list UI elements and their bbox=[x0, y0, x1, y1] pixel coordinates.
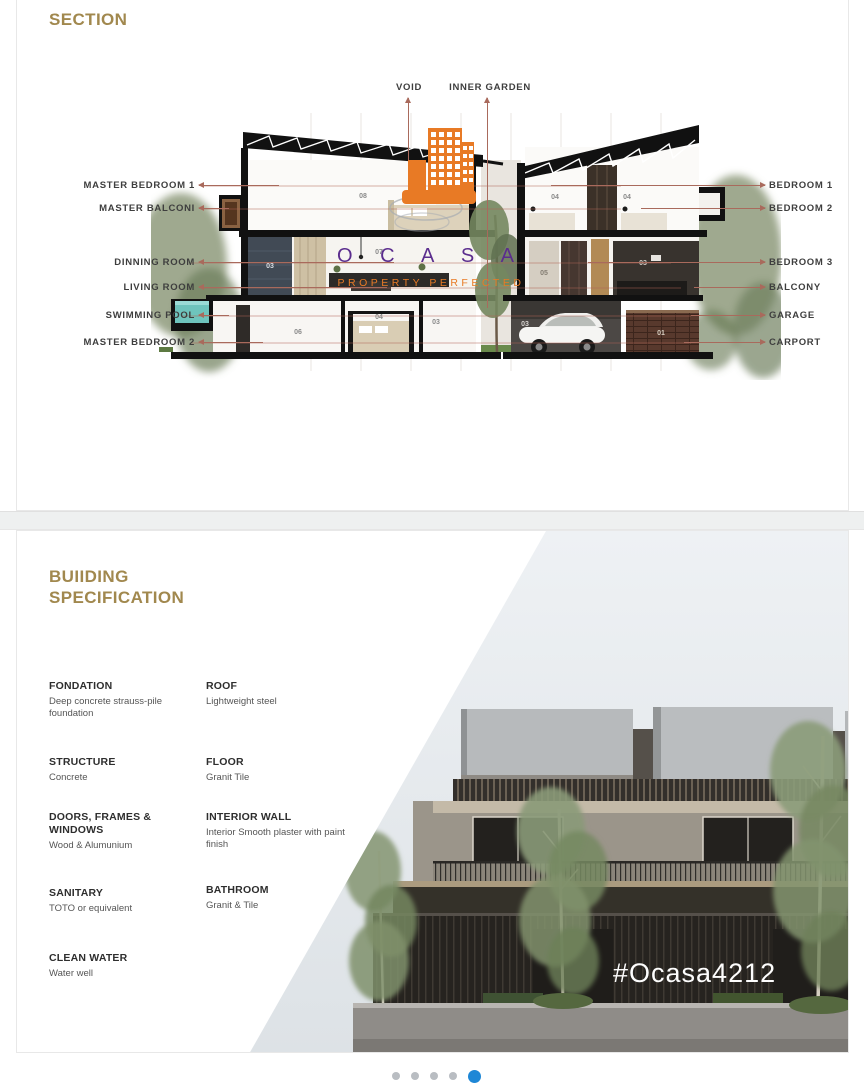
label-carport: CARPORT bbox=[769, 337, 821, 348]
label-bedroom-3: BEDROOM 3 bbox=[769, 257, 833, 268]
spec-label: CLEAN WATER bbox=[49, 952, 189, 965]
spec-value: Deep concrete strauss-pile foundation bbox=[49, 696, 189, 720]
spec-roof: ROOF Lightweight steel bbox=[206, 680, 346, 708]
page-dot-4[interactable] bbox=[449, 1072, 457, 1080]
room-number: 01 bbox=[657, 330, 665, 337]
room-number: 04 bbox=[551, 194, 559, 201]
arrow-swimming-pool bbox=[199, 315, 229, 316]
arrow-master-bedroom-1 bbox=[199, 185, 279, 186]
section-panel: SECTION bbox=[16, 0, 849, 511]
spec-bathroom: BATHROOM Granit & Tile bbox=[206, 884, 346, 912]
room-number: 06 bbox=[294, 329, 302, 336]
room-number: 03 bbox=[432, 319, 440, 326]
hashtag-text: #Ocasa4212 bbox=[613, 958, 776, 989]
page-dot-5-active[interactable] bbox=[468, 1070, 481, 1083]
spec-clean-water: CLEAN WATER Water well bbox=[49, 952, 189, 980]
page-dot-1[interactable] bbox=[392, 1072, 400, 1080]
spec-title-line2: SPECIFICATION bbox=[49, 587, 184, 608]
spec-value: Water well bbox=[49, 968, 189, 980]
label-master-balconi: MASTER BALCONI bbox=[39, 203, 195, 214]
room-number: 08 bbox=[359, 193, 367, 200]
spec-structure: STRUCTURE Concrete bbox=[49, 756, 189, 784]
inner-garden-arrow bbox=[487, 98, 488, 308]
spec-value: Concrete bbox=[49, 772, 189, 784]
label-balcony: BALCONY bbox=[769, 282, 821, 293]
spec-sanitary: SANITARY TOTO or equivalent bbox=[49, 887, 189, 915]
spec-value: Lightweight steel bbox=[206, 696, 346, 708]
spec-value: Interior Smooth plaster with paint finis… bbox=[206, 827, 346, 851]
room-number: 04 bbox=[623, 194, 631, 201]
page-dot-2[interactable] bbox=[411, 1072, 419, 1080]
room-number: 03 bbox=[521, 321, 529, 328]
spec-value: Granit Tile bbox=[206, 772, 346, 784]
spec-floor: FLOOR Granit Tile bbox=[206, 756, 346, 784]
arrow-balcony bbox=[694, 287, 765, 288]
room-number: 03 bbox=[266, 263, 274, 270]
spec-label: FONDATION bbox=[49, 680, 189, 693]
arrow-master-bedroom-2 bbox=[199, 342, 263, 343]
room-number: 05 bbox=[540, 270, 548, 277]
arrow-bedroom-3 bbox=[588, 262, 765, 263]
spec-interior-wall: INTERIOR WALL Interior Smooth plaster wi… bbox=[206, 811, 346, 851]
carousel-pagination bbox=[392, 1069, 481, 1083]
section-drawing: 08 03 07 06 04 03 04 04 05 03 03 01 bbox=[151, 105, 781, 380]
spec-value: TOTO or equivalent bbox=[49, 903, 189, 915]
room-number: 04 bbox=[375, 314, 383, 321]
arrow-garage bbox=[691, 315, 765, 316]
spec-label: STRUCTURE bbox=[49, 756, 189, 769]
label-dinning-room: DINNING ROOM bbox=[39, 257, 195, 268]
label-living-room: LIVING ROOM bbox=[39, 282, 195, 293]
spec-doors-frames-windows: DOORS, FRAMES & WINDOWS Wood & Alumunium bbox=[49, 811, 169, 852]
page-dot-3[interactable] bbox=[430, 1072, 438, 1080]
spec-value: Granit & Tile bbox=[206, 900, 346, 912]
spec-label: BATHROOM bbox=[206, 884, 346, 897]
label-inner-garden: INNER GARDEN bbox=[430, 82, 550, 93]
arrow-dinning-room bbox=[199, 262, 394, 263]
label-garage: GARAGE bbox=[769, 310, 815, 321]
spec-title-line1: BUIIDING bbox=[49, 566, 184, 587]
spec-fondation: FONDATION Deep concrete strauss-pile fou… bbox=[49, 680, 189, 720]
specification-panel: #Ocasa4212 BUIIDING SPECIFICATION FONDAT… bbox=[16, 530, 849, 1053]
arrow-bedroom-2 bbox=[641, 208, 765, 209]
spec-label: FLOOR bbox=[206, 756, 346, 769]
label-master-bedroom-2: MASTER BEDROOM 2 bbox=[39, 337, 195, 348]
arrow-carport bbox=[684, 342, 765, 343]
label-bedroom-2: BEDROOM 2 bbox=[769, 203, 833, 214]
spec-label: DOORS, FRAMES & WINDOWS bbox=[49, 811, 169, 837]
spec-value: Wood & Alumunium bbox=[49, 840, 169, 852]
room-number: 07 bbox=[375, 249, 383, 256]
spec-label: ROOF bbox=[206, 680, 346, 693]
arrow-master-balconi bbox=[199, 208, 229, 209]
void-arrow bbox=[408, 98, 409, 202]
spec-label: INTERIOR WALL bbox=[206, 811, 346, 824]
arrow-living-room bbox=[199, 287, 387, 288]
spec-label: SANITARY bbox=[49, 887, 189, 900]
card-divider bbox=[0, 511, 864, 530]
label-master-bedroom-1: MASTER BEDROOM 1 bbox=[39, 180, 195, 191]
arrow-bedroom-1 bbox=[551, 185, 765, 186]
section-diagram: 08 03 07 06 04 03 04 04 05 03 03 01 VOID… bbox=[17, 0, 848, 510]
label-bedroom-1: BEDROOM 1 bbox=[769, 180, 833, 191]
label-swimming-pool: SWIMMING POOL bbox=[39, 310, 195, 321]
spec-title: BUIIDING SPECIFICATION bbox=[49, 566, 184, 608]
